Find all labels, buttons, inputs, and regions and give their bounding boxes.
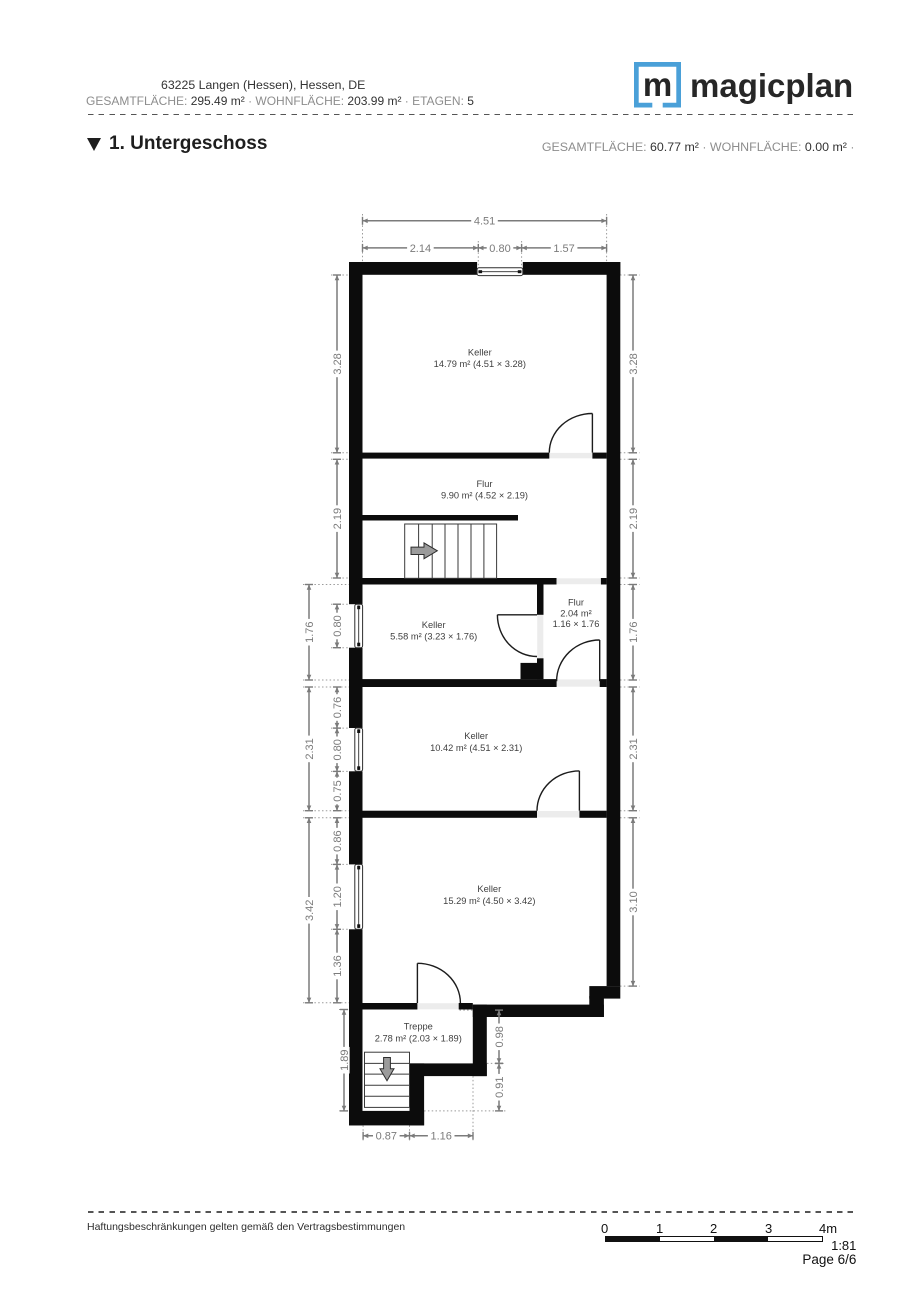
svg-text:Flur: Flur <box>476 479 492 489</box>
svg-text:15.29 m² (4.50 × 3.42): 15.29 m² (4.50 × 3.42) <box>443 896 535 906</box>
svg-text:2.14: 2.14 <box>410 243 431 255</box>
svg-text:2.31: 2.31 <box>628 738 640 759</box>
svg-text:Flur: Flur <box>568 598 584 608</box>
svg-text:1.36: 1.36 <box>332 955 344 976</box>
svg-text:Keller: Keller <box>468 347 492 357</box>
svg-text:0.80: 0.80 <box>489 243 510 255</box>
svg-text:2.31: 2.31 <box>304 738 316 759</box>
svg-text:Keller: Keller <box>422 620 446 630</box>
svg-text:14.79 m² (4.51 × 3.28): 14.79 m² (4.51 × 3.28) <box>434 359 526 369</box>
svg-text:3.28: 3.28 <box>628 353 640 374</box>
svg-text:3.10: 3.10 <box>628 891 640 912</box>
svg-text:2.78 m² (2.03 × 1.89): 2.78 m² (2.03 × 1.89) <box>375 1033 462 1043</box>
svg-text:3.28: 3.28 <box>332 353 344 374</box>
svg-text:0.98: 0.98 <box>494 1026 506 1047</box>
svg-text:Keller: Keller <box>477 884 501 894</box>
svg-text:5.58 m² (3.23 × 1.76): 5.58 m² (3.23 × 1.76) <box>390 632 477 642</box>
svg-text:Keller: Keller <box>464 731 488 741</box>
svg-text:0.91: 0.91 <box>494 1076 506 1097</box>
svg-text:1.20: 1.20 <box>332 886 344 907</box>
svg-text:10.42 m² (4.51 × 2.31): 10.42 m² (4.51 × 2.31) <box>430 743 522 753</box>
svg-text:1.16: 1.16 <box>430 1131 451 1143</box>
svg-text:1.76: 1.76 <box>304 621 316 642</box>
svg-text:0.80: 0.80 <box>332 739 344 760</box>
svg-text:0.87: 0.87 <box>376 1131 397 1143</box>
svg-text:1.16 × 1.76: 1.16 × 1.76 <box>553 619 600 629</box>
svg-text:1.89: 1.89 <box>339 1049 351 1070</box>
svg-text:m: m <box>643 65 672 102</box>
svg-text:0.75: 0.75 <box>332 780 344 801</box>
svg-text:2.04 m²: 2.04 m² <box>560 608 592 618</box>
svg-text:2.19: 2.19 <box>332 508 344 529</box>
svg-text:0.76: 0.76 <box>332 697 344 718</box>
svg-text:9.90 m² (4.52 × 2.19): 9.90 m² (4.52 × 2.19) <box>441 490 528 500</box>
svg-text:1.76: 1.76 <box>628 621 640 642</box>
svg-text:1.57: 1.57 <box>553 243 574 255</box>
svg-text:2.19: 2.19 <box>628 508 640 529</box>
svg-text:0.86: 0.86 <box>332 830 344 851</box>
svg-text:4.51: 4.51 <box>474 216 495 228</box>
svg-text:0.80: 0.80 <box>332 615 344 636</box>
svg-text:Treppe: Treppe <box>404 1022 433 1032</box>
svg-text:3.42: 3.42 <box>304 900 316 921</box>
